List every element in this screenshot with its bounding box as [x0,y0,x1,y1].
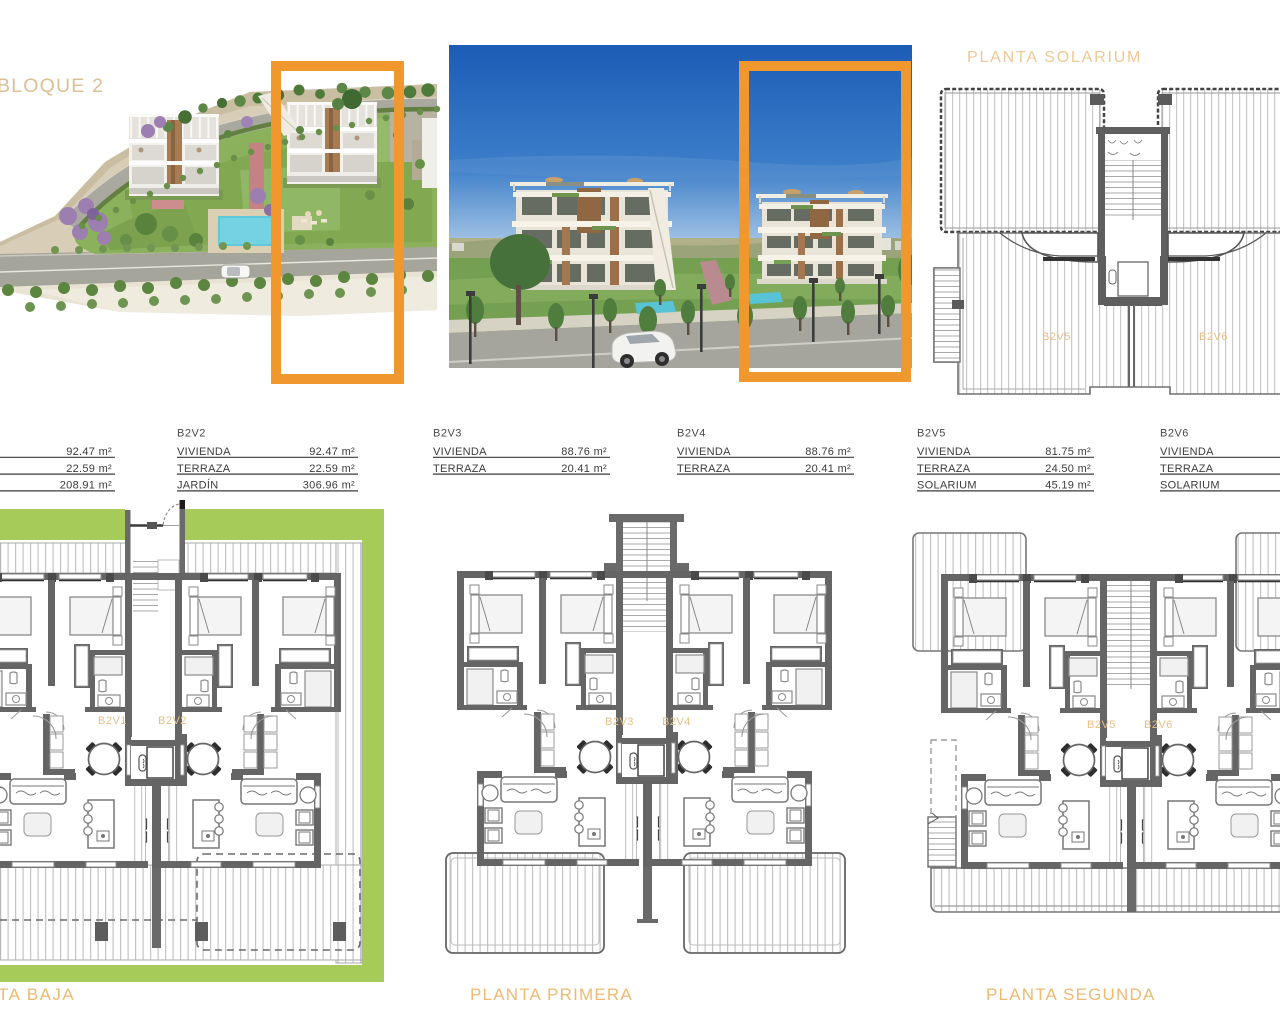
svg-text:PLANTA SOLARIUM: PLANTA SOLARIUM [967,49,1142,66]
svg-text:TERRAZA: TERRAZA [177,463,231,475]
svg-text:B2V5: B2V5 [917,428,946,440]
svg-text:B2V5: B2V5 [1087,719,1116,731]
svg-text:B2V6: B2V6 [1199,331,1228,343]
svg-text:JARDÍN: JARDÍN [177,479,219,492]
svg-text:B2V3: B2V3 [433,428,462,440]
svg-text:B2V4: B2V4 [662,716,691,728]
svg-text:VIVIENDA: VIVIENDA [433,446,487,458]
svg-text:306.96 m²: 306.96 m² [303,480,355,492]
svg-text:TERRAZA: TERRAZA [677,463,731,475]
svg-text:B2V3: B2V3 [605,716,634,728]
svg-text:88.76 m²: 88.76 m² [805,446,851,458]
svg-text:45.19 m²: 45.19 m² [1045,480,1091,492]
svg-text:B2V1: B2V1 [98,715,127,727]
svg-text:20.41 m²: 20.41 m² [561,463,607,475]
svg-text:VIVIENDA: VIVIENDA [677,446,731,458]
svg-text:88.76 m²: 88.76 m² [561,446,607,458]
svg-text:TERRAZA: TERRAZA [1160,463,1214,475]
svg-text:TERRAZA: TERRAZA [917,463,971,475]
svg-text:24.50 m²: 24.50 m² [1045,463,1091,475]
svg-text:SOLARIUM: SOLARIUM [1160,480,1220,492]
svg-text:B2V2: B2V2 [177,428,206,440]
svg-text:22.59 m²: 22.59 m² [66,463,112,475]
svg-text:BLOQUE 2: BLOQUE 2 [0,75,104,97]
svg-text:PLANTA PRIMERA: PLANTA PRIMERA [470,985,633,1004]
svg-text:VIVIENDA: VIVIENDA [177,446,231,458]
svg-text:81.75 m²: 81.75 m² [1045,446,1091,458]
svg-text:TERRAZA: TERRAZA [433,463,487,475]
svg-text:TA BAJA: TA BAJA [0,985,75,1004]
svg-text:92.47 m²: 92.47 m² [309,446,355,458]
svg-text:B2V4: B2V4 [677,428,706,440]
svg-text:B2V6: B2V6 [1144,719,1173,731]
svg-text:208.91 m²: 208.91 m² [60,480,112,492]
svg-text:VIVIENDA: VIVIENDA [917,446,971,458]
svg-text:VIVIENDA: VIVIENDA [1160,446,1214,458]
svg-text:B2V5: B2V5 [1042,331,1071,343]
svg-text:20.41 m²: 20.41 m² [805,463,851,475]
svg-text:B2V6: B2V6 [1160,428,1189,440]
svg-text:PLANTA SEGUNDA: PLANTA SEGUNDA [986,985,1156,1004]
svg-text:B2V2: B2V2 [158,715,187,727]
svg-text:SOLARIUM: SOLARIUM [917,480,977,492]
svg-text:22.59 m²: 22.59 m² [309,463,355,475]
svg-text:92.47 m²: 92.47 m² [66,446,112,458]
